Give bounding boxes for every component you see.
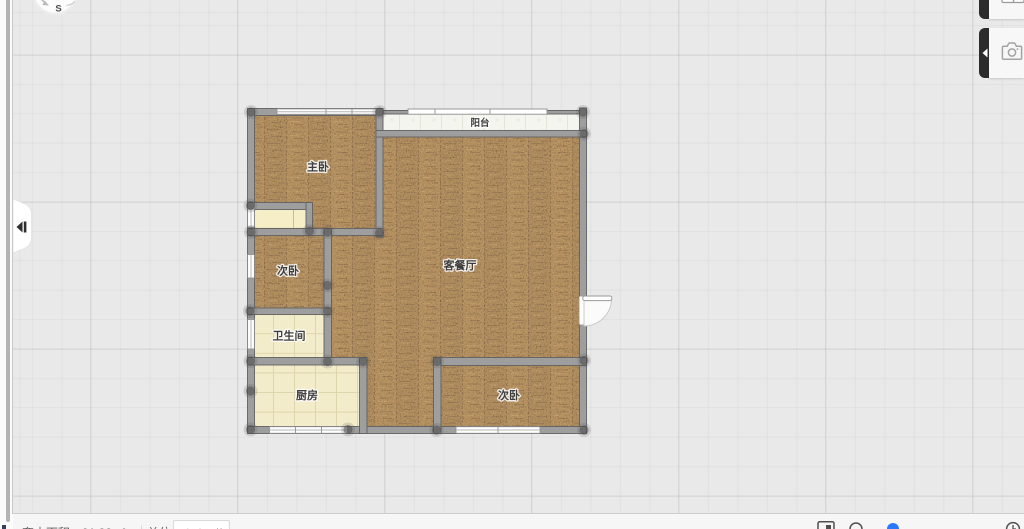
svg-text:主卧: 主卧 — [307, 160, 329, 174]
svg-text:卫生间: 卫生间 — [273, 329, 306, 343]
svg-text:次卧: 次卧 — [498, 388, 520, 402]
svg-text:阳台: 阳台 — [470, 117, 490, 129]
svg-text:次卧: 次卧 — [277, 264, 299, 278]
svg-text:厨房: 厨房 — [296, 388, 318, 402]
svg-text:S: S — [55, 4, 61, 15]
svg-text:客餐厅: 客餐厅 — [443, 258, 477, 272]
